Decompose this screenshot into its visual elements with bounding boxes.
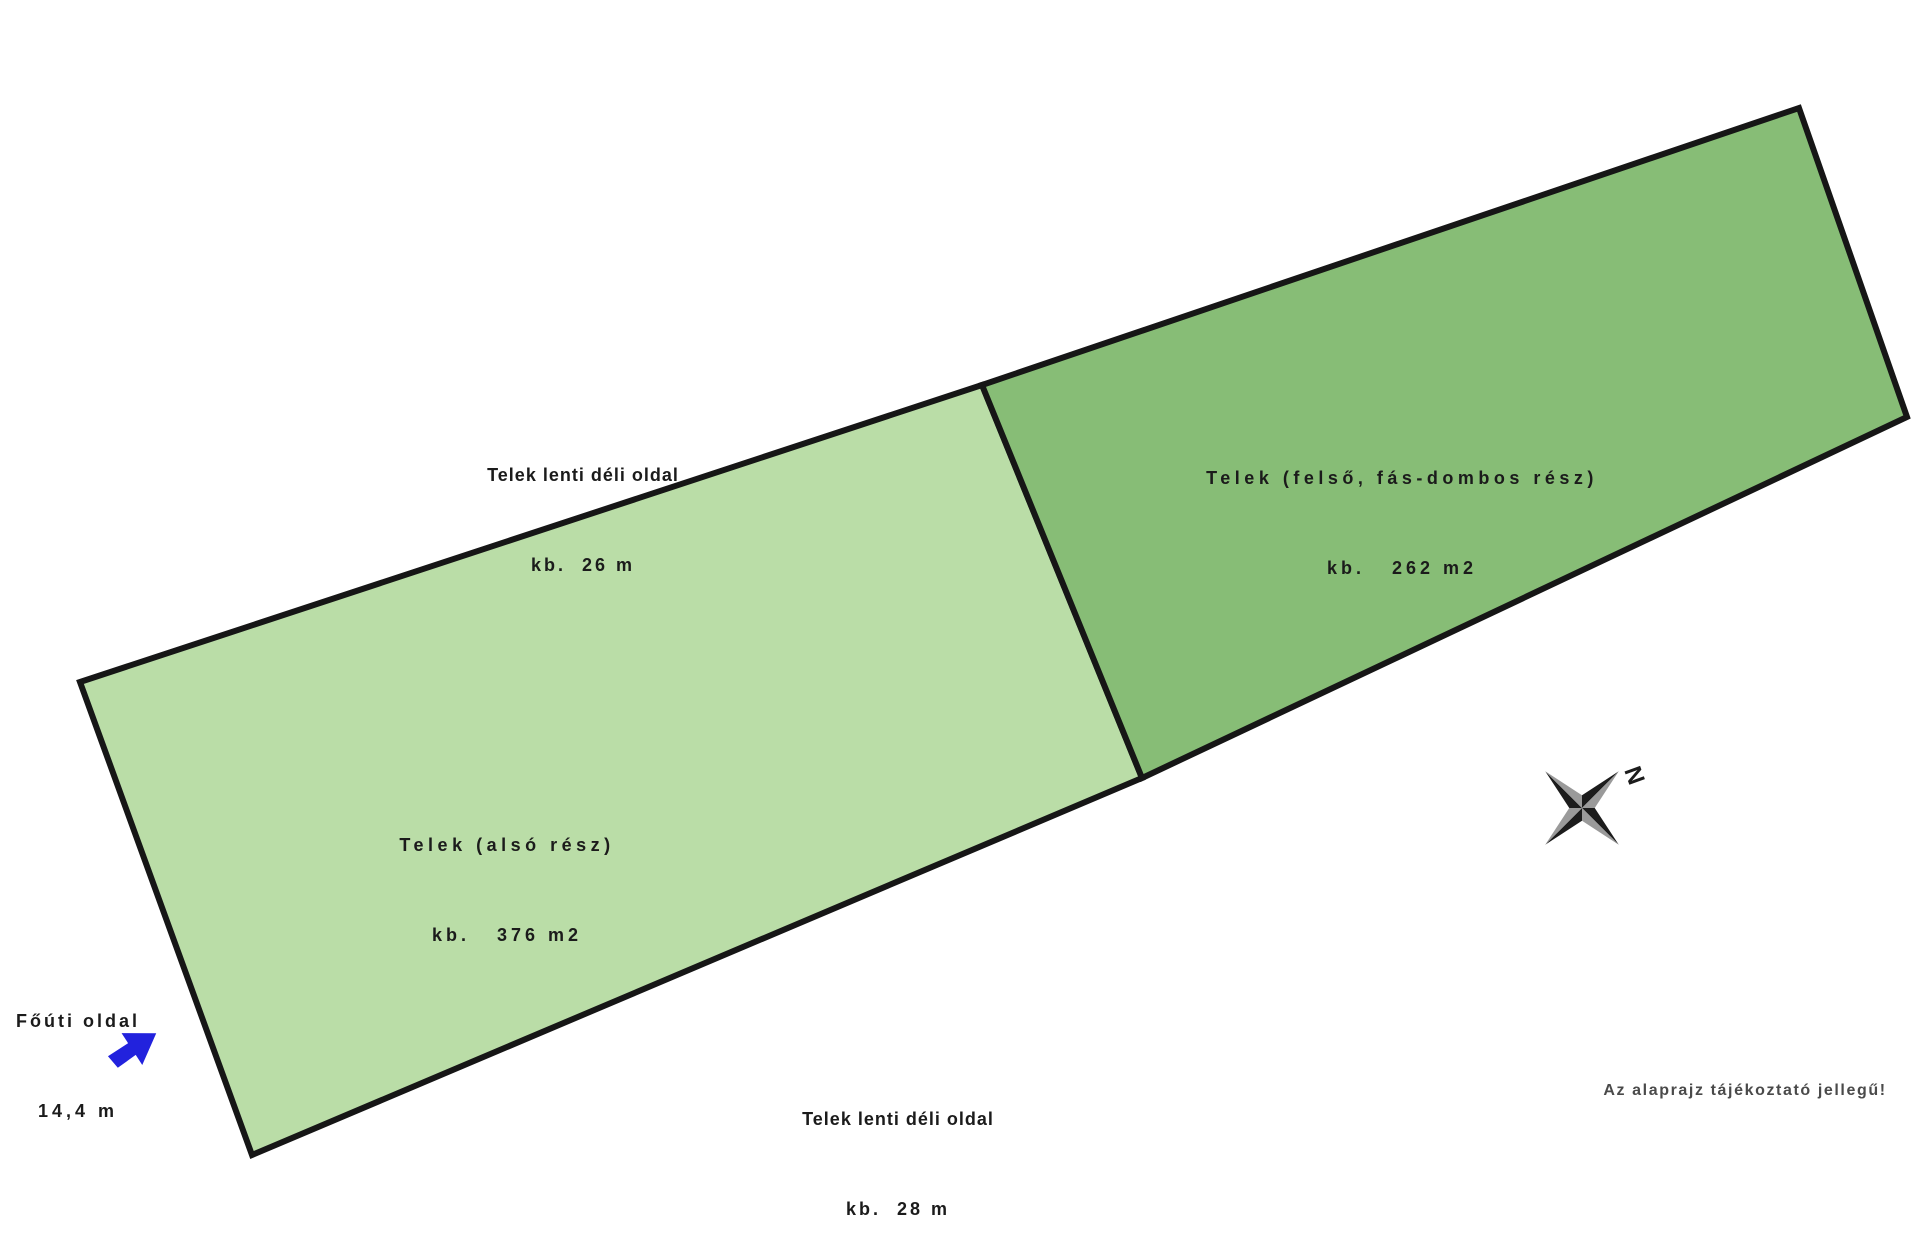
measurement-top-side: Telek lenti déli oldal kb. 26 m	[487, 400, 679, 610]
measurement-road-side-label: Főúti oldal	[16, 1006, 140, 1036]
measurement-bottom-side: Telek lenti déli oldal kb. 28 m	[802, 1044, 994, 1254]
measurement-top-side-value: kb. 26 m	[487, 550, 679, 580]
measurement-bottom-side-label: Telek lenti déli oldal	[802, 1104, 994, 1134]
measurement-road-side: Főúti oldal 14,4 m	[16, 946, 140, 1156]
plot-upper-area: kb. 262 m2	[1206, 553, 1598, 583]
measurement-road-side-value: 14,4 m	[16, 1096, 140, 1126]
plot-lower-area: kb. 376 m2	[399, 920, 614, 950]
plot-upper-name: Telek (felső, fás-dombos rész)	[1206, 463, 1598, 493]
plot-upper-label: Telek (felső, fás-dombos rész) kb. 262 m…	[1206, 403, 1598, 613]
plot-lower-label: Telek (alsó rész) kb. 376 m2	[399, 770, 614, 980]
disclaimer-note: Az alaprajz tájékoztató jellegű!	[1603, 1016, 1886, 1136]
measurement-bottom-side-value: kb. 28 m	[802, 1194, 994, 1224]
measurement-top-side-label: Telek lenti déli oldal	[487, 460, 679, 490]
compass-rose-icon: N	[1512, 738, 1662, 888]
plot-lower-name: Telek (alsó rész)	[399, 830, 614, 860]
compass-north-label: N	[1618, 763, 1649, 789]
disclaimer-note-text: Az alaprajz tájékoztató jellegű!	[1603, 1076, 1886, 1106]
